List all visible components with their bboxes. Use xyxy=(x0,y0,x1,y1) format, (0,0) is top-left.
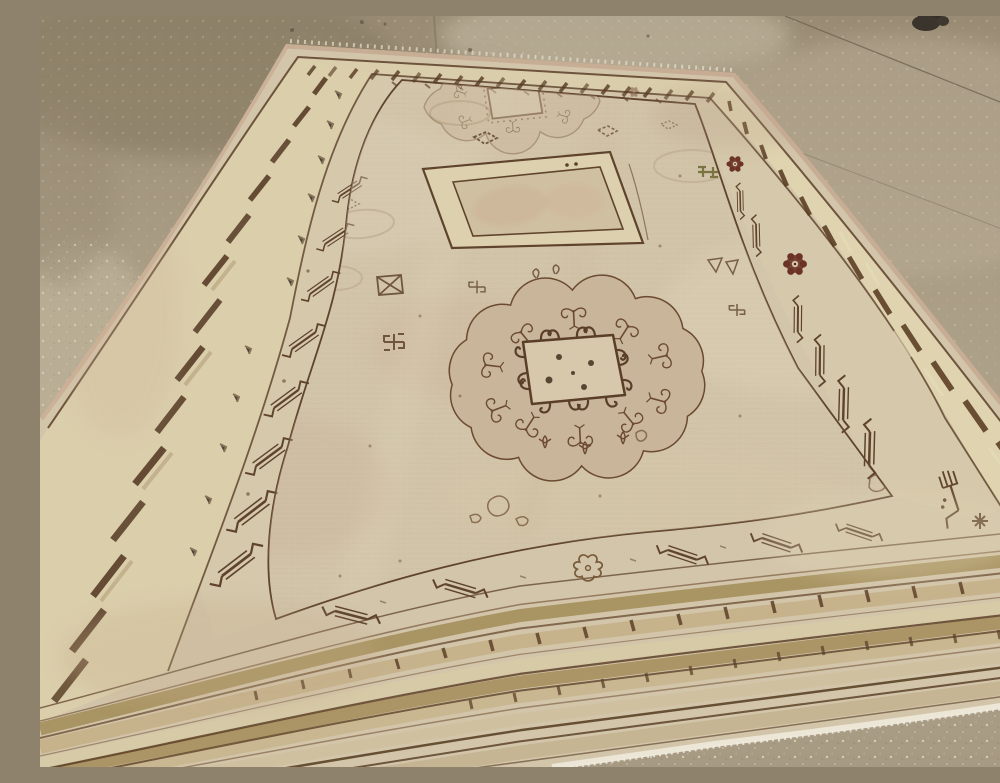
rug-photograph xyxy=(40,16,1000,767)
square-frame-motif xyxy=(423,152,648,248)
